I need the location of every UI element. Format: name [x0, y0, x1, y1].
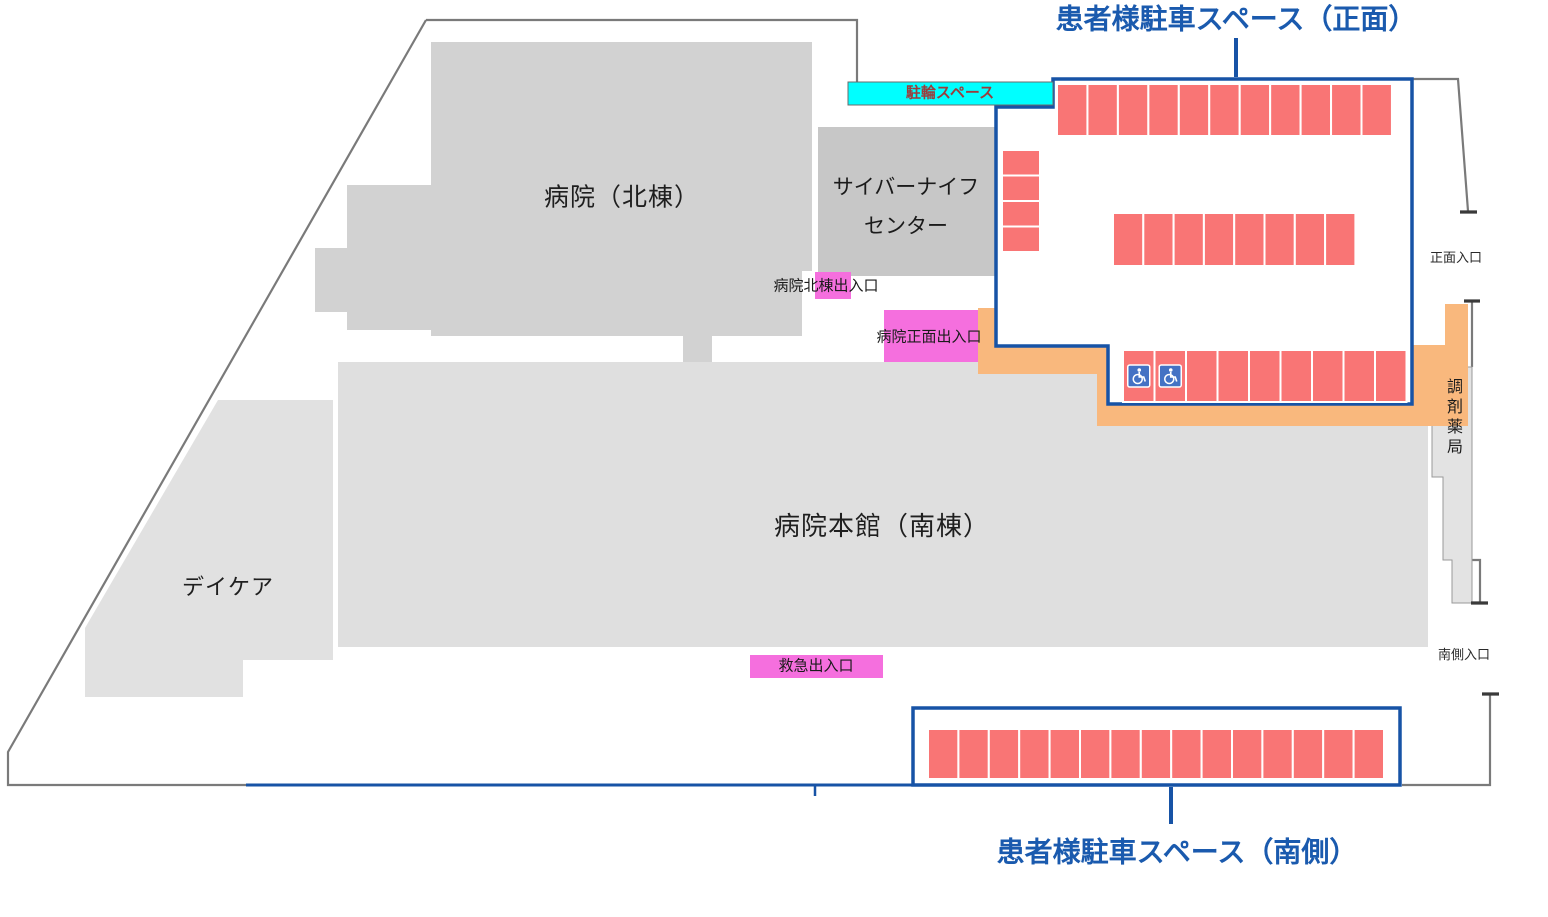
- north-building-shape: [431, 42, 812, 271]
- hospital-site-map: 患者様駐車スペース（正面） 患者様駐車スペース（南側） 駐輪スペース 病院（北棟…: [0, 0, 1548, 917]
- driveway-segment: [978, 346, 1108, 374]
- parking-stall: [1174, 213, 1204, 266]
- parking-stall: [1323, 729, 1353, 779]
- parking-stall: [1202, 729, 1232, 779]
- parking-stall: [1002, 201, 1040, 227]
- parking-stall: [1312, 350, 1344, 402]
- boundary-right-pharmacy: [1472, 560, 1480, 602]
- boundary-bottom-right: [1402, 695, 1490, 785]
- parking-stall: [1209, 84, 1239, 136]
- building-connector-shape: [683, 336, 712, 364]
- bike-parking-label: 駐輪スペース: [906, 84, 994, 103]
- parking-stall: [1141, 729, 1171, 779]
- parking-stall: [1080, 729, 1110, 779]
- map-canvas: [0, 0, 1548, 917]
- parking-stall: [1218, 350, 1250, 402]
- parking-stall: [1057, 84, 1087, 136]
- parking-stall: [1171, 729, 1201, 779]
- parking-stall: [1232, 729, 1262, 779]
- parking-stall: [1113, 213, 1143, 266]
- parking-stall: [1281, 350, 1313, 402]
- parking-stall: [1110, 729, 1140, 779]
- parking-stall: [1179, 84, 1209, 136]
- parking-stall: [1002, 176, 1040, 202]
- parking-stall: [1002, 150, 1040, 176]
- parking-stall: [1050, 729, 1080, 779]
- cyberknife-center-label: サイバーナイフ センター: [833, 168, 980, 246]
- parking-stall: [1234, 213, 1264, 266]
- parking-stall: [1186, 350, 1218, 402]
- parking-stall: [1325, 213, 1355, 266]
- front-parking-title: 患者様駐車スペース（正面）: [1056, 2, 1417, 37]
- parking-stall: [1118, 84, 1148, 136]
- parking-stall: [1301, 84, 1331, 136]
- handicap-icon: [1159, 365, 1181, 387]
- parking-stall: [928, 729, 958, 779]
- parking-stall: [989, 729, 1019, 779]
- parking-stall: [1344, 350, 1376, 402]
- parking-stall: [1375, 350, 1407, 402]
- daycare-shape: [85, 400, 333, 697]
- front-entrance-label: 病院正面出入口: [876, 328, 981, 347]
- pharmacy-label: 調剤薬局: [1441, 378, 1465, 458]
- parking-stall: [1354, 729, 1384, 779]
- main-building-label: 病院本館（南棟）: [774, 511, 990, 544]
- parking-stall: [1148, 84, 1178, 136]
- north-entrance-label: 病院北棟出入口: [773, 277, 878, 296]
- parking-stall: [1240, 84, 1270, 136]
- driveway-segment: [1097, 404, 1468, 426]
- parking-stall: [1270, 84, 1300, 136]
- parking-stall: [1362, 84, 1392, 136]
- parking-stall: [1331, 84, 1361, 136]
- boundary-right-top: [1412, 79, 1468, 211]
- parking-stall: [1293, 729, 1323, 779]
- north-building-annex-shape: [347, 185, 432, 330]
- parking-stall: [1249, 350, 1281, 402]
- parking-stall: [1204, 213, 1234, 266]
- parking-stall: [1019, 729, 1049, 779]
- parking-stall: [1087, 84, 1117, 136]
- north-building-step-shape: [315, 248, 348, 312]
- north-building-lower-shape: [431, 268, 802, 336]
- parking-stall: [1262, 729, 1292, 779]
- daycare-label: デイケア: [182, 574, 274, 602]
- south-gate-label: 南側入口: [1438, 648, 1490, 664]
- north-building-label: 病院（北棟）: [544, 181, 700, 212]
- parking-stall: [1295, 213, 1325, 266]
- emergency-entrance-label: 救急出入口: [778, 657, 853, 676]
- parking-stall: [1265, 213, 1295, 266]
- handicap-icon: [1128, 365, 1150, 387]
- parking-stall: [1002, 227, 1040, 253]
- parking-stall: [1143, 213, 1173, 266]
- front-gate-label: 正面入口: [1430, 251, 1482, 267]
- south-parking-title: 患者様駐車スペース（南側）: [997, 835, 1358, 870]
- parking-stall: [958, 729, 988, 779]
